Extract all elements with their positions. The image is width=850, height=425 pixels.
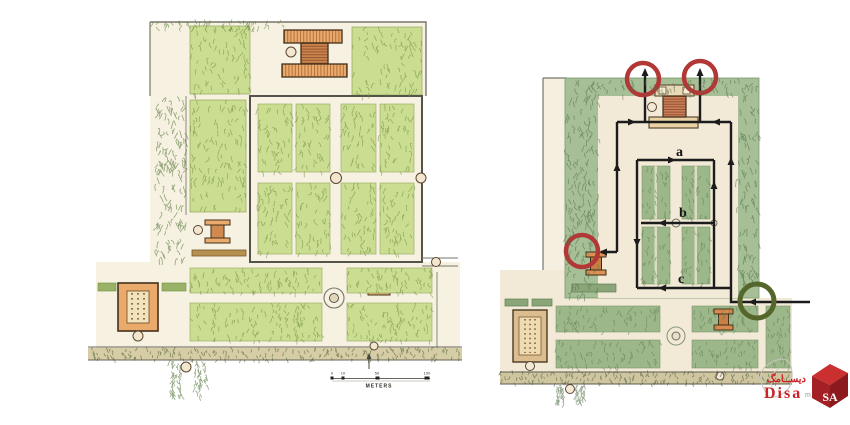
- pavilion-wing: [205, 238, 230, 243]
- scale-tick-label: 50: [375, 371, 380, 376]
- hedge-strip: [505, 299, 528, 306]
- key-marker: [181, 362, 191, 372]
- scale-tick: [425, 377, 430, 380]
- hedge-strip: [98, 283, 116, 291]
- arrow-up: [642, 68, 649, 76]
- key-marker: [416, 173, 426, 183]
- route-label-c: c: [678, 272, 684, 287]
- arrow-up: [697, 68, 704, 76]
- lawn: [556, 340, 660, 368]
- fountain-marker: [330, 294, 339, 303]
- key-marker: [432, 258, 441, 267]
- pavilion-wing: [205, 220, 230, 225]
- plans-canvas: 0 10 50 100 METERS: [0, 0, 850, 425]
- lawn: [556, 306, 660, 332]
- garden-plot: [352, 27, 422, 95]
- sub-path: [695, 227, 698, 284]
- key-marker: [566, 385, 575, 394]
- scale-tick-label: 0: [331, 371, 334, 376]
- brand-name-farsi: دیســامگ: [767, 372, 807, 385]
- scanned-garden-plans-image: 0 10 50 100 METERS: [0, 0, 850, 425]
- scale-tick: [376, 377, 380, 380]
- key-marker: [526, 362, 535, 371]
- pavilion-wing: [714, 325, 733, 330]
- hedge-strip: [532, 299, 552, 306]
- route-label-a: a: [676, 145, 683, 160]
- key-marker: [331, 173, 342, 184]
- brand-name-latin: Disa: [764, 385, 802, 402]
- central-walled-garden: [250, 96, 426, 262]
- hedge-strip: [162, 283, 186, 291]
- pavilion-notch: [659, 87, 666, 94]
- garden-plot: [341, 104, 376, 172]
- scale-bar: 0 10 50 100 METERS: [331, 371, 432, 390]
- cube-letters: SA: [822, 390, 838, 404]
- scale-tick: [331, 377, 334, 380]
- right-plan-figure: a b c: [499, 61, 810, 408]
- route-label-b: b: [679, 206, 687, 221]
- scale-tick-label: 10: [341, 371, 346, 376]
- garden-plot: [190, 100, 246, 212]
- scale-unit-label: METERS: [366, 384, 393, 390]
- key-marker: [133, 331, 143, 341]
- brand-cube-logo: SA: [812, 364, 848, 408]
- foliage-texture: [574, 385, 586, 406]
- key-marker: [370, 342, 378, 350]
- left-plan-figure: 0 10 50 100 METERS: [88, 19, 462, 401]
- scale-tick: [342, 377, 345, 380]
- lower-building: [513, 310, 547, 371]
- key-marker: [648, 103, 657, 112]
- foliage-texture: [555, 385, 565, 407]
- pavilion-core: [211, 225, 224, 238]
- scale-tick-label: 100: [424, 371, 431, 376]
- lawn: [190, 268, 322, 293]
- foliage-texture: [193, 361, 209, 401]
- garden-plot: [190, 26, 250, 94]
- building-court: [519, 317, 541, 355]
- key-marker: [286, 47, 296, 57]
- lawn: [692, 340, 758, 368]
- fountain-marker: [672, 332, 680, 340]
- hedge-strip: [192, 250, 246, 256]
- key-marker: [194, 226, 203, 235]
